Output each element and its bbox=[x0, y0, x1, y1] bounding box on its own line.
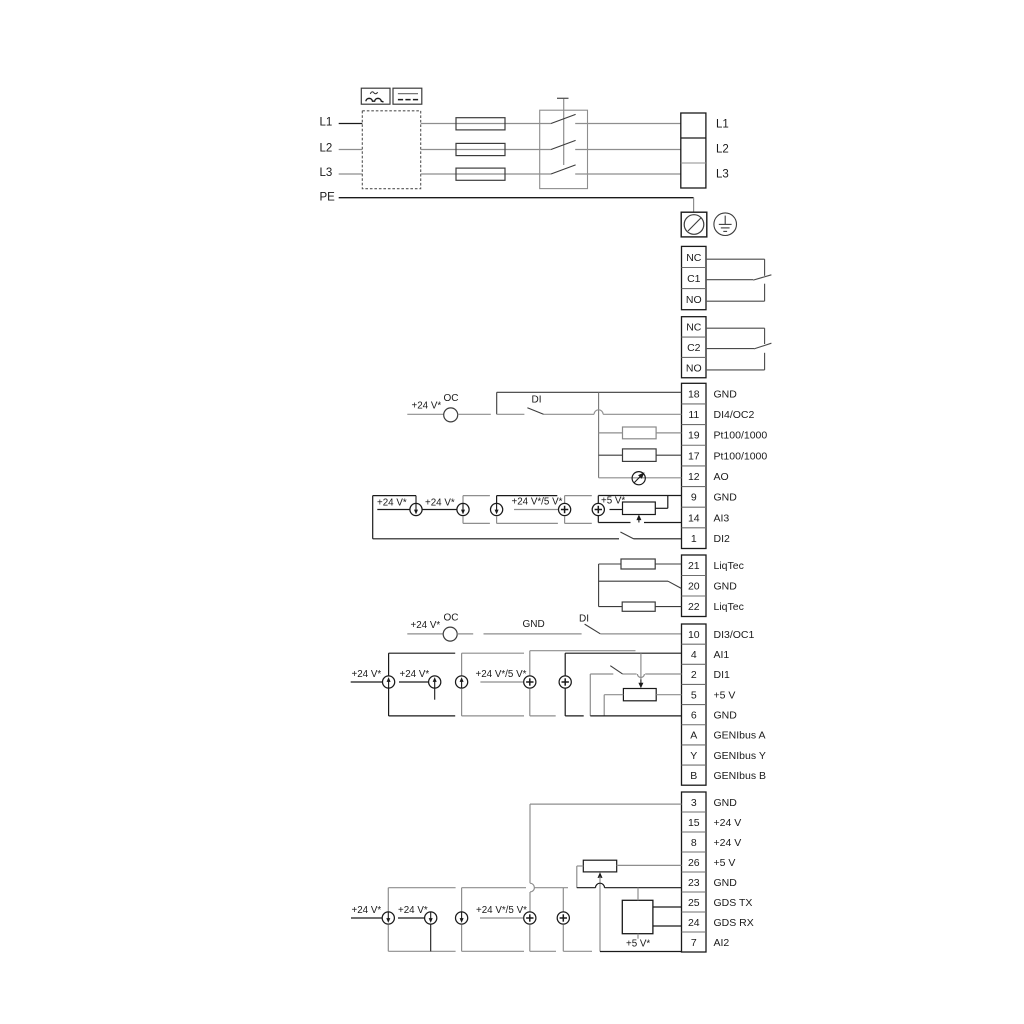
svg-text:+24 V*: +24 V* bbox=[352, 905, 382, 916]
svg-text:AI3: AI3 bbox=[714, 512, 730, 524]
svg-text:20: 20 bbox=[688, 581, 700, 593]
svg-text:10: 10 bbox=[688, 629, 700, 641]
svg-text:OC: OC bbox=[444, 393, 459, 404]
svg-text:26: 26 bbox=[688, 857, 700, 869]
svg-text:GND: GND bbox=[714, 492, 738, 504]
svg-text:+5 V*: +5 V* bbox=[601, 496, 625, 507]
svg-text:LiqTec: LiqTec bbox=[714, 601, 744, 613]
svg-text:GDS RX: GDS RX bbox=[714, 917, 754, 929]
svg-text:OC: OC bbox=[444, 612, 459, 623]
svg-text:GND: GND bbox=[714, 877, 738, 889]
svg-text:GND: GND bbox=[714, 797, 738, 809]
svg-text:+24 V*/5 V*: +24 V*/5 V* bbox=[476, 669, 527, 680]
svg-text:GND: GND bbox=[714, 388, 738, 400]
svg-text:+24 V*: +24 V* bbox=[352, 669, 382, 680]
svg-text:+5 V: +5 V bbox=[714, 689, 736, 701]
svg-text:14: 14 bbox=[688, 512, 700, 524]
svg-text:12: 12 bbox=[688, 471, 700, 483]
svg-text:15: 15 bbox=[688, 817, 700, 829]
svg-text:PE: PE bbox=[320, 192, 336, 204]
svg-text:GENIbus Y: GENIbus Y bbox=[714, 750, 766, 762]
svg-text:19: 19 bbox=[688, 430, 700, 442]
svg-text:B: B bbox=[690, 770, 697, 782]
svg-text:GDS TX: GDS TX bbox=[714, 897, 753, 909]
svg-text:Pt100/1000: Pt100/1000 bbox=[714, 430, 768, 442]
svg-text:L2: L2 bbox=[320, 143, 333, 155]
svg-text:DI2: DI2 bbox=[714, 533, 731, 545]
svg-text:+24 V*: +24 V* bbox=[400, 669, 430, 680]
svg-text:AO: AO bbox=[714, 471, 729, 483]
svg-text:+24 V: +24 V bbox=[714, 837, 742, 849]
svg-text:DI3/OC1: DI3/OC1 bbox=[714, 629, 755, 641]
svg-text:+24 V*/5 V*: +24 V*/5 V* bbox=[476, 905, 527, 916]
svg-text:DI4/OC2: DI4/OC2 bbox=[714, 409, 755, 421]
svg-text:GENIbus A: GENIbus A bbox=[714, 730, 766, 742]
svg-text:+24 V*: +24 V* bbox=[398, 905, 428, 916]
svg-text:AI2: AI2 bbox=[714, 937, 730, 949]
svg-text:GND: GND bbox=[714, 581, 738, 593]
svg-text:18: 18 bbox=[688, 388, 700, 400]
svg-text:Y: Y bbox=[690, 750, 697, 762]
svg-text:NC: NC bbox=[686, 252, 702, 264]
svg-text:2: 2 bbox=[691, 669, 697, 681]
svg-text:NC: NC bbox=[686, 322, 702, 334]
svg-text:7: 7 bbox=[691, 937, 697, 949]
svg-text:+24 V*: +24 V* bbox=[377, 497, 407, 508]
svg-text:LiqTec: LiqTec bbox=[714, 560, 744, 572]
svg-text:L3: L3 bbox=[716, 169, 729, 181]
svg-text:17: 17 bbox=[688, 450, 700, 462]
svg-text:9: 9 bbox=[691, 492, 697, 504]
svg-text:+24 V: +24 V bbox=[714, 817, 742, 829]
svg-text:L2: L2 bbox=[716, 144, 729, 156]
svg-text:C2: C2 bbox=[687, 342, 701, 354]
svg-text:21: 21 bbox=[688, 560, 700, 572]
svg-text:+24 V*: +24 V* bbox=[411, 620, 441, 631]
svg-text:A: A bbox=[690, 730, 697, 742]
svg-text:+5 V*: +5 V* bbox=[626, 938, 650, 949]
svg-text:+24 V*/5 V*: +24 V*/5 V* bbox=[512, 497, 563, 508]
svg-text:L1: L1 bbox=[716, 119, 729, 131]
svg-text:L1: L1 bbox=[320, 117, 333, 129]
svg-text:11: 11 bbox=[688, 409, 699, 421]
svg-text:4: 4 bbox=[691, 649, 697, 661]
svg-text:5: 5 bbox=[691, 689, 697, 701]
svg-text:22: 22 bbox=[688, 601, 700, 613]
svg-text:25: 25 bbox=[688, 897, 700, 909]
svg-text:DI1: DI1 bbox=[714, 669, 731, 681]
svg-text:3: 3 bbox=[691, 797, 697, 809]
svg-text:+24 V*: +24 V* bbox=[425, 497, 455, 508]
svg-text:6: 6 bbox=[691, 709, 697, 721]
svg-text:L3: L3 bbox=[320, 167, 333, 179]
svg-text:+5 V: +5 V bbox=[714, 857, 736, 869]
svg-text:C1: C1 bbox=[687, 273, 701, 285]
svg-text:NO: NO bbox=[686, 294, 702, 306]
svg-text:GND: GND bbox=[714, 709, 738, 721]
svg-text:23: 23 bbox=[688, 877, 700, 889]
svg-text:Pt100/1000: Pt100/1000 bbox=[714, 450, 768, 462]
svg-text:DI: DI bbox=[532, 395, 542, 406]
svg-text:24: 24 bbox=[688, 917, 700, 929]
svg-text:8: 8 bbox=[691, 837, 697, 849]
svg-text:DI: DI bbox=[579, 613, 589, 624]
svg-text:1: 1 bbox=[691, 533, 697, 545]
svg-text:NO: NO bbox=[686, 362, 702, 374]
svg-text:+24 V*: +24 V* bbox=[412, 400, 442, 411]
svg-text:AI1: AI1 bbox=[714, 649, 730, 661]
svg-text:GENIbus B: GENIbus B bbox=[714, 770, 767, 782]
svg-text:GND: GND bbox=[523, 619, 545, 630]
